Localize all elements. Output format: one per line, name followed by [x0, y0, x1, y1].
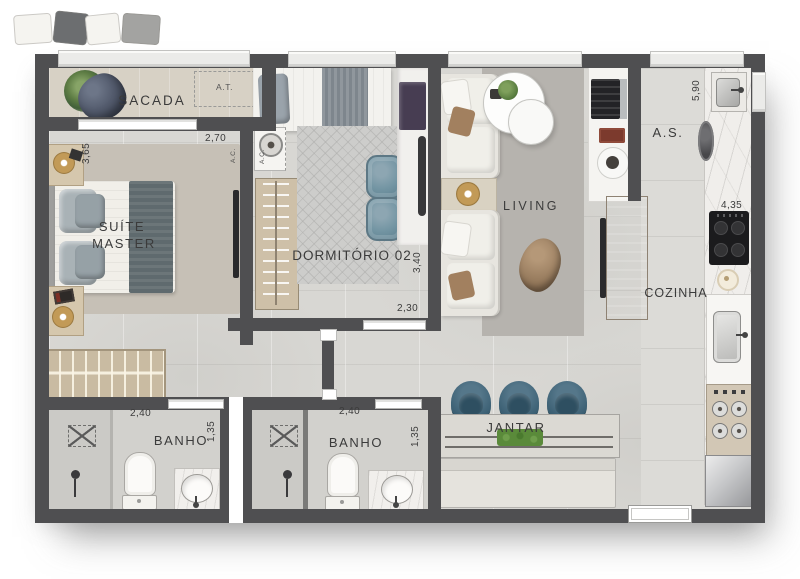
plant-icon [498, 80, 518, 100]
floor-plan: SACADA A.T. SUÍTE MASTER DORMITÓRIO 02 L… [0, 0, 800, 579]
faucet-stem [395, 496, 397, 503]
room-label-jantar: JANTAR [486, 420, 545, 435]
toilet-icon [122, 452, 156, 508]
lamp-icon [456, 182, 480, 206]
door-leaf [322, 389, 337, 400]
coffee-machine-side [620, 79, 627, 119]
decor-item [599, 128, 625, 143]
dim-banho2-width: 2,40 [339, 406, 360, 417]
bowl-icon [717, 269, 739, 291]
pillow [85, 12, 122, 45]
wall [428, 397, 441, 523]
dim-banho2-depth: 1,35 [410, 426, 421, 447]
sink-icon [181, 474, 213, 503]
door-banho-2 [375, 399, 422, 409]
window [752, 72, 766, 112]
ac-label: A.C. [259, 149, 266, 164]
dim-as-depth: 5,90 [691, 80, 702, 101]
room-label-living: LIVING [503, 199, 559, 213]
room-label-banho-1: BANHO [154, 433, 208, 448]
shower-drain-icon [68, 425, 96, 447]
faucet-stem [195, 496, 197, 503]
stove-icon [706, 384, 753, 456]
wall [322, 338, 334, 390]
pillow [121, 13, 161, 46]
table-edge [445, 446, 613, 448]
pillow [13, 13, 53, 46]
entry-door [628, 505, 692, 523]
shower-divider [303, 410, 308, 509]
pillow [440, 220, 472, 258]
plate-icon [597, 147, 629, 179]
door-leaf [320, 329, 337, 341]
window [650, 51, 744, 67]
plate-center [606, 156, 619, 169]
dim-banho1-depth: 1,35 [206, 421, 217, 442]
outer-wall-right [751, 54, 765, 523]
sink-icon [381, 475, 413, 504]
room-label-cozinha: COZINHA [644, 286, 707, 300]
dim-cozinha: 4,35 [721, 200, 742, 211]
tv-sideboard [606, 196, 648, 320]
wall [628, 54, 641, 201]
window [288, 51, 396, 67]
wardrobe [255, 178, 299, 310]
wall [240, 117, 253, 345]
room-label-as: A.S. [653, 125, 684, 140]
blanket [322, 68, 368, 131]
coffee-table [508, 99, 554, 145]
room-label-at: A.T. [216, 82, 233, 92]
knobs [717, 214, 743, 217]
desk-chair [418, 136, 426, 216]
door-dormitorio [363, 320, 426, 330]
sofa [441, 210, 500, 316]
pillow [52, 10, 89, 45]
room-label-sacada: SACADA [118, 93, 186, 108]
kitchen-sink [713, 311, 741, 363]
window [448, 51, 582, 67]
tub [716, 78, 740, 107]
balcony-railing [58, 50, 250, 67]
knobs [714, 390, 745, 394]
room-label-dormitorio: DORMITÓRIO 02 [292, 248, 412, 263]
sliding-door [78, 119, 197, 130]
wall [243, 397, 252, 523]
wall [428, 54, 441, 331]
door-suite-bath [168, 399, 224, 409]
dim-dorm-depth: 3,40 [412, 252, 423, 273]
shower-head-icon [71, 470, 80, 479]
faucet-stem [736, 334, 744, 336]
shower-drain-icon [270, 425, 298, 447]
bench [436, 458, 616, 508]
tv-icon [600, 218, 606, 298]
shower-stem [286, 479, 288, 497]
dim-banho1-width: 2,40 [130, 408, 151, 419]
toilet-icon [325, 453, 359, 509]
cushion [447, 127, 495, 173]
ac-label: A.C. [230, 148, 237, 163]
room-label-banho-2: BANHO [329, 435, 383, 450]
lamp-icon [52, 306, 74, 328]
room-label-suite-2: MASTER [92, 236, 156, 251]
dim-dorm-door: 2,30 [397, 303, 418, 314]
coffee-machine-icon [591, 79, 620, 119]
suite-closet [44, 349, 166, 400]
fridge-icon [705, 455, 753, 507]
monitor-icon [399, 82, 426, 130]
outer-wall-left [35, 54, 49, 523]
dim-suite-width: 2,70 [205, 133, 226, 144]
rail [275, 181, 277, 305]
tv-icon [233, 190, 239, 278]
vessel-sink [698, 121, 714, 161]
bench-back [437, 459, 615, 471]
shower-head-icon [283, 470, 292, 479]
room-label-suite-1: SUÍTE [99, 219, 145, 234]
shaft [229, 397, 243, 523]
faucet-stem [731, 89, 739, 91]
shower-stem [74, 479, 76, 497]
shower-divider [110, 410, 113, 509]
wall [220, 397, 229, 523]
dim-suite-depth: 3,65 [81, 143, 92, 164]
cooktop-icon [709, 211, 749, 265]
